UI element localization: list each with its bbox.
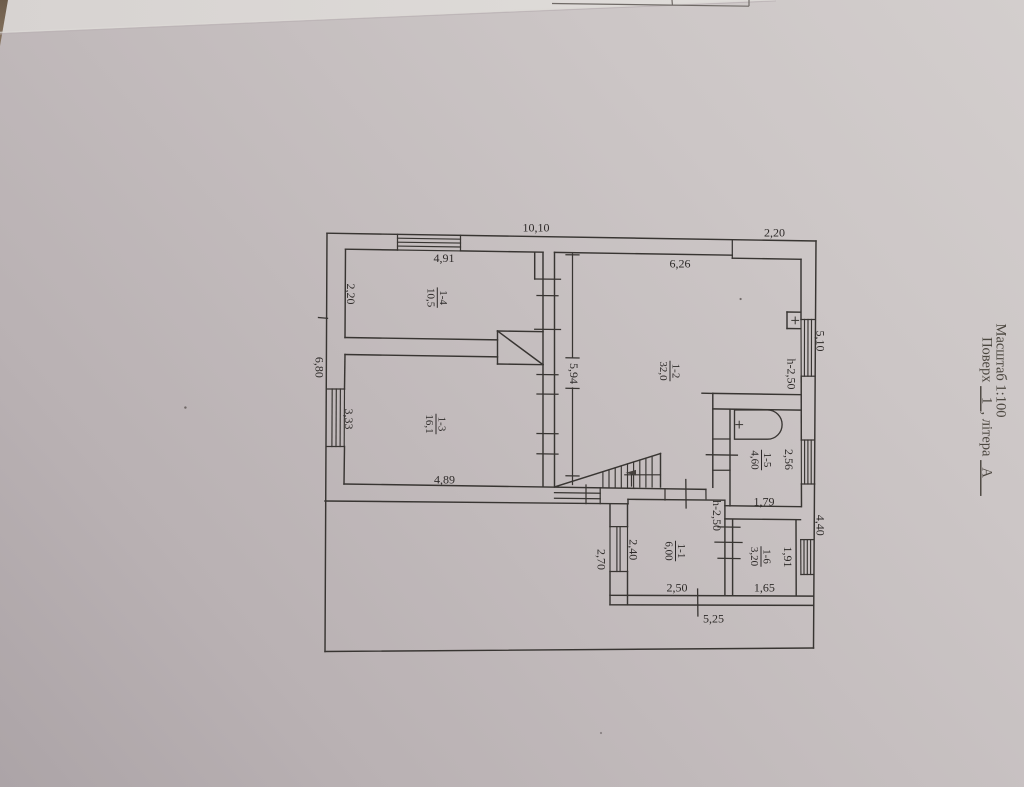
svg-text:10,10: 10,10 (523, 220, 550, 234)
svg-text:1-6: 1-6 (761, 549, 773, 564)
svg-text:6,26: 6,26 (670, 257, 691, 271)
svg-text:5,10: 5,10 (814, 331, 828, 352)
svg-text:h-2,50: h-2,50 (710, 500, 724, 531)
svg-text:5,94: 5,94 (567, 363, 581, 384)
svg-text:1,91: 1,91 (781, 547, 795, 568)
svg-text:16,1: 16,1 (423, 414, 435, 433)
svg-text:1-3: 1-3 (436, 417, 448, 432)
svg-text:2,20: 2,20 (764, 226, 785, 240)
svg-text:3,20: 3,20 (748, 547, 760, 567)
svg-text:2,56: 2,56 (782, 449, 796, 470)
svg-text:4,89: 4,89 (434, 473, 455, 487)
svg-text:5,25: 5,25 (703, 612, 724, 626)
svg-text:2,70: 2,70 (595, 549, 609, 570)
svg-text:6,80: 6,80 (313, 357, 327, 378)
svg-text:1,65: 1,65 (754, 581, 775, 595)
svg-text:6,00: 6,00 (663, 541, 675, 561)
svg-text:2,40: 2,40 (627, 539, 641, 560)
svg-text:Поверх 1 , літера А: Поверх 1 , літера А (979, 337, 995, 496)
svg-text:1-5: 1-5 (761, 453, 773, 468)
svg-text:1-4: 1-4 (437, 290, 449, 305)
svg-text:1,79: 1,79 (754, 495, 775, 509)
svg-text:4,91: 4,91 (434, 251, 455, 265)
svg-text:2,50: 2,50 (667, 581, 688, 595)
svg-text:4,60: 4,60 (749, 450, 761, 470)
svg-text:32,0: 32,0 (657, 361, 669, 381)
svg-text:2,20: 2,20 (344, 284, 358, 305)
svg-text:1-1: 1-1 (675, 544, 687, 559)
svg-text:3,33: 3,33 (342, 409, 356, 430)
svg-text:h-2,50: h-2,50 (785, 359, 799, 390)
svg-text:4,40: 4,40 (814, 515, 828, 536)
svg-text:1-2: 1-2 (670, 364, 682, 379)
svg-text:10,5: 10,5 (424, 288, 436, 308)
